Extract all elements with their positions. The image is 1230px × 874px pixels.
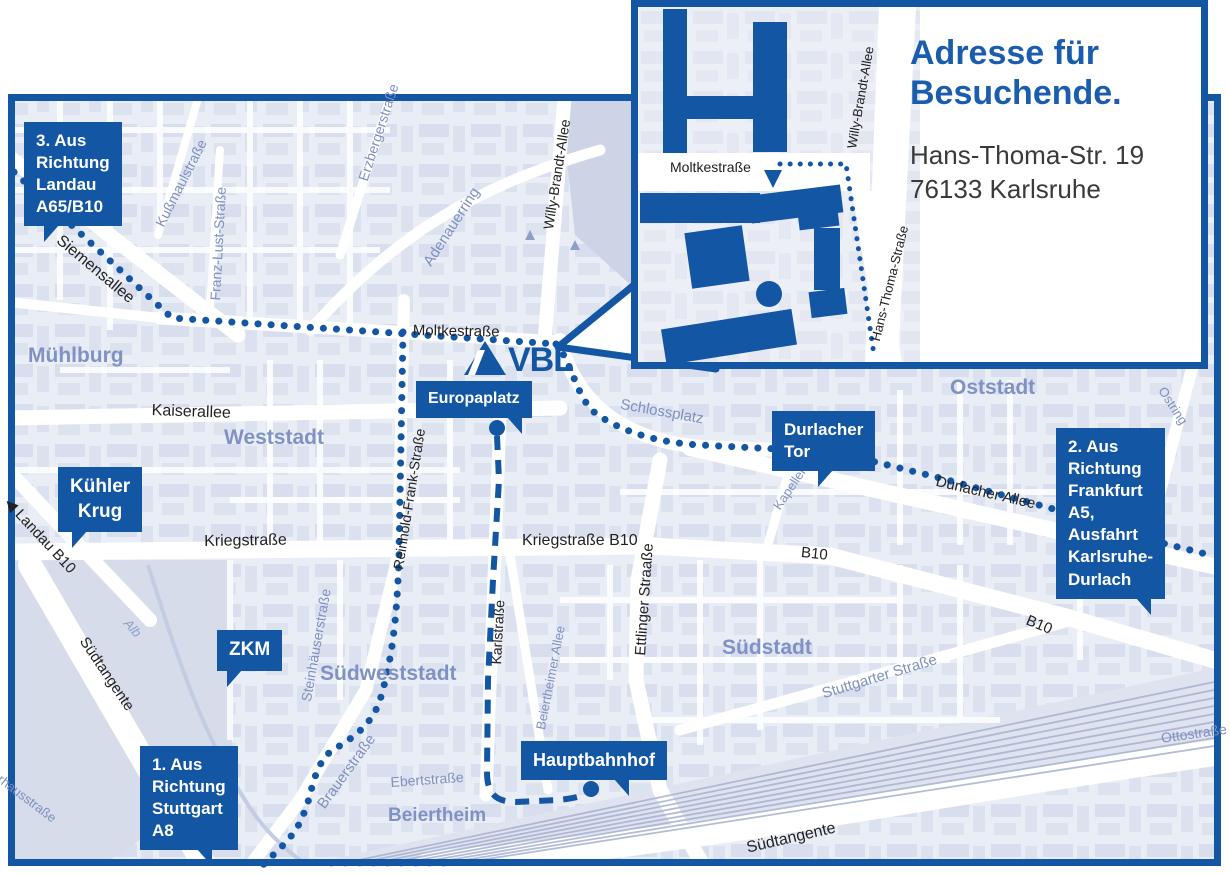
callout-landau-line: 3. Aus Richtung — [36, 130, 110, 174]
vbl-logo: VBL — [464, 341, 573, 377]
visitor-address-inset: MoltkestraßeWilly-Brandt-AlleeHans-Thoma… — [631, 0, 1208, 369]
street-label-kriegstrasse: Kriegstraße — [204, 532, 287, 551]
street-label-muehlburg: Mühlburg — [28, 344, 124, 368]
callout-frankfurt-line: Ausfahrt — [1068, 524, 1153, 546]
callout-durlacher-tor-tail — [818, 470, 833, 487]
callout-europaplatz-tail — [507, 417, 522, 434]
callout-stuttgart: 1. Aus RichtungStuttgart A8 — [140, 746, 238, 850]
callout-landau-line: Landau A65/B10 — [36, 174, 110, 218]
callout-frankfurt-line: Frankfurt A5, — [1068, 480, 1153, 524]
vbl-triangle-icon — [464, 341, 506, 377]
inset-text-block: Adresse für Besuchende. Hans-Thoma-Str. … — [910, 33, 1195, 207]
vbl-logo-text: VBL — [508, 343, 573, 377]
callout-stuttgart-line: Stuttgart A8 — [152, 798, 226, 842]
street-label-beiertheim: Beiertheim — [388, 805, 486, 827]
vbl-directions-map: VBL SiemensalleeKußmaulstraßeFranz-Lust-… — [0, 0, 1230, 874]
callout-durlacher-tor: Durlacher Tor — [772, 411, 875, 471]
street-label-suedstadt: Südstadt — [722, 636, 812, 660]
callout-kuehler-krug: KühlerKrug — [58, 467, 142, 532]
inset-address: Hans-Thoma-Str. 19 76133 Karlsruhe — [910, 139, 1195, 207]
inset-address-line2: 76133 Karlsruhe — [910, 173, 1195, 207]
callout-landau-tail — [44, 225, 59, 242]
callout-stuttgart-line: 1. Aus Richtung — [152, 754, 226, 798]
europaplatz-dot — [489, 420, 505, 436]
callout-kuehler-krug-line: Krug — [70, 500, 130, 525]
callout-kuehler-krug-line: Kühler — [70, 475, 130, 500]
street-label-weststadt: Weststadt — [224, 426, 324, 450]
callout-stuttgart-tail — [197, 849, 212, 866]
street-label-moltkestrasse: Moltkestraße — [413, 322, 500, 341]
callout-frankfurt: 2. Aus RichtungFrankfurt A5,AusfahrtKarl… — [1056, 428, 1165, 599]
callout-landau: 3. Aus RichtungLandau A65/B10 — [24, 122, 122, 226]
street-label-b10-west: B10 — [800, 544, 828, 564]
callout-frankfurt-tail — [1136, 598, 1151, 615]
inset-label-moltkestrasse-inset: Moltkestraße — [670, 159, 751, 175]
callout-zkm: ZKM — [217, 630, 282, 671]
callout-frankfurt-line: Karlsruhe-Durlach — [1068, 546, 1153, 590]
inset-title-line2: Besuchende. — [910, 73, 1195, 113]
callout-europaplatz: Europaplatz — [416, 381, 532, 418]
hauptbahnhof-dot — [583, 781, 599, 797]
street-label-suedweststadt: Südweststadt — [320, 662, 457, 686]
callout-frankfurt-line: 2. Aus Richtung — [1068, 436, 1153, 480]
callout-zkm-line: ZKM — [229, 638, 270, 663]
callout-zkm-tail — [227, 670, 242, 687]
callout-europaplatz-line: Europaplatz — [428, 389, 520, 410]
callout-hauptbahnhof: Hauptbahnhof — [521, 741, 667, 780]
callout-hauptbahnhof-tail — [614, 779, 629, 796]
street-label-kaiserallee: Kaiserallee — [151, 402, 231, 423]
street-label-oststadt: Oststadt — [950, 376, 1035, 400]
callout-kuehler-krug-tail — [72, 531, 87, 548]
inset-title-line1: Adresse für — [910, 33, 1195, 73]
street-label-karlstrasse: Karlstraße — [488, 600, 507, 665]
inset-address-line1: Hans-Thoma-Str. 19 — [910, 139, 1195, 173]
inset-title: Adresse für Besuchende. — [910, 33, 1195, 113]
callout-hauptbahnhof-line: Hauptbahnhof — [533, 749, 655, 772]
callout-durlacher-tor-line: Durlacher Tor — [784, 419, 863, 463]
street-label-kriegstrasse-b10: Kriegstraße B10 — [522, 532, 638, 550]
